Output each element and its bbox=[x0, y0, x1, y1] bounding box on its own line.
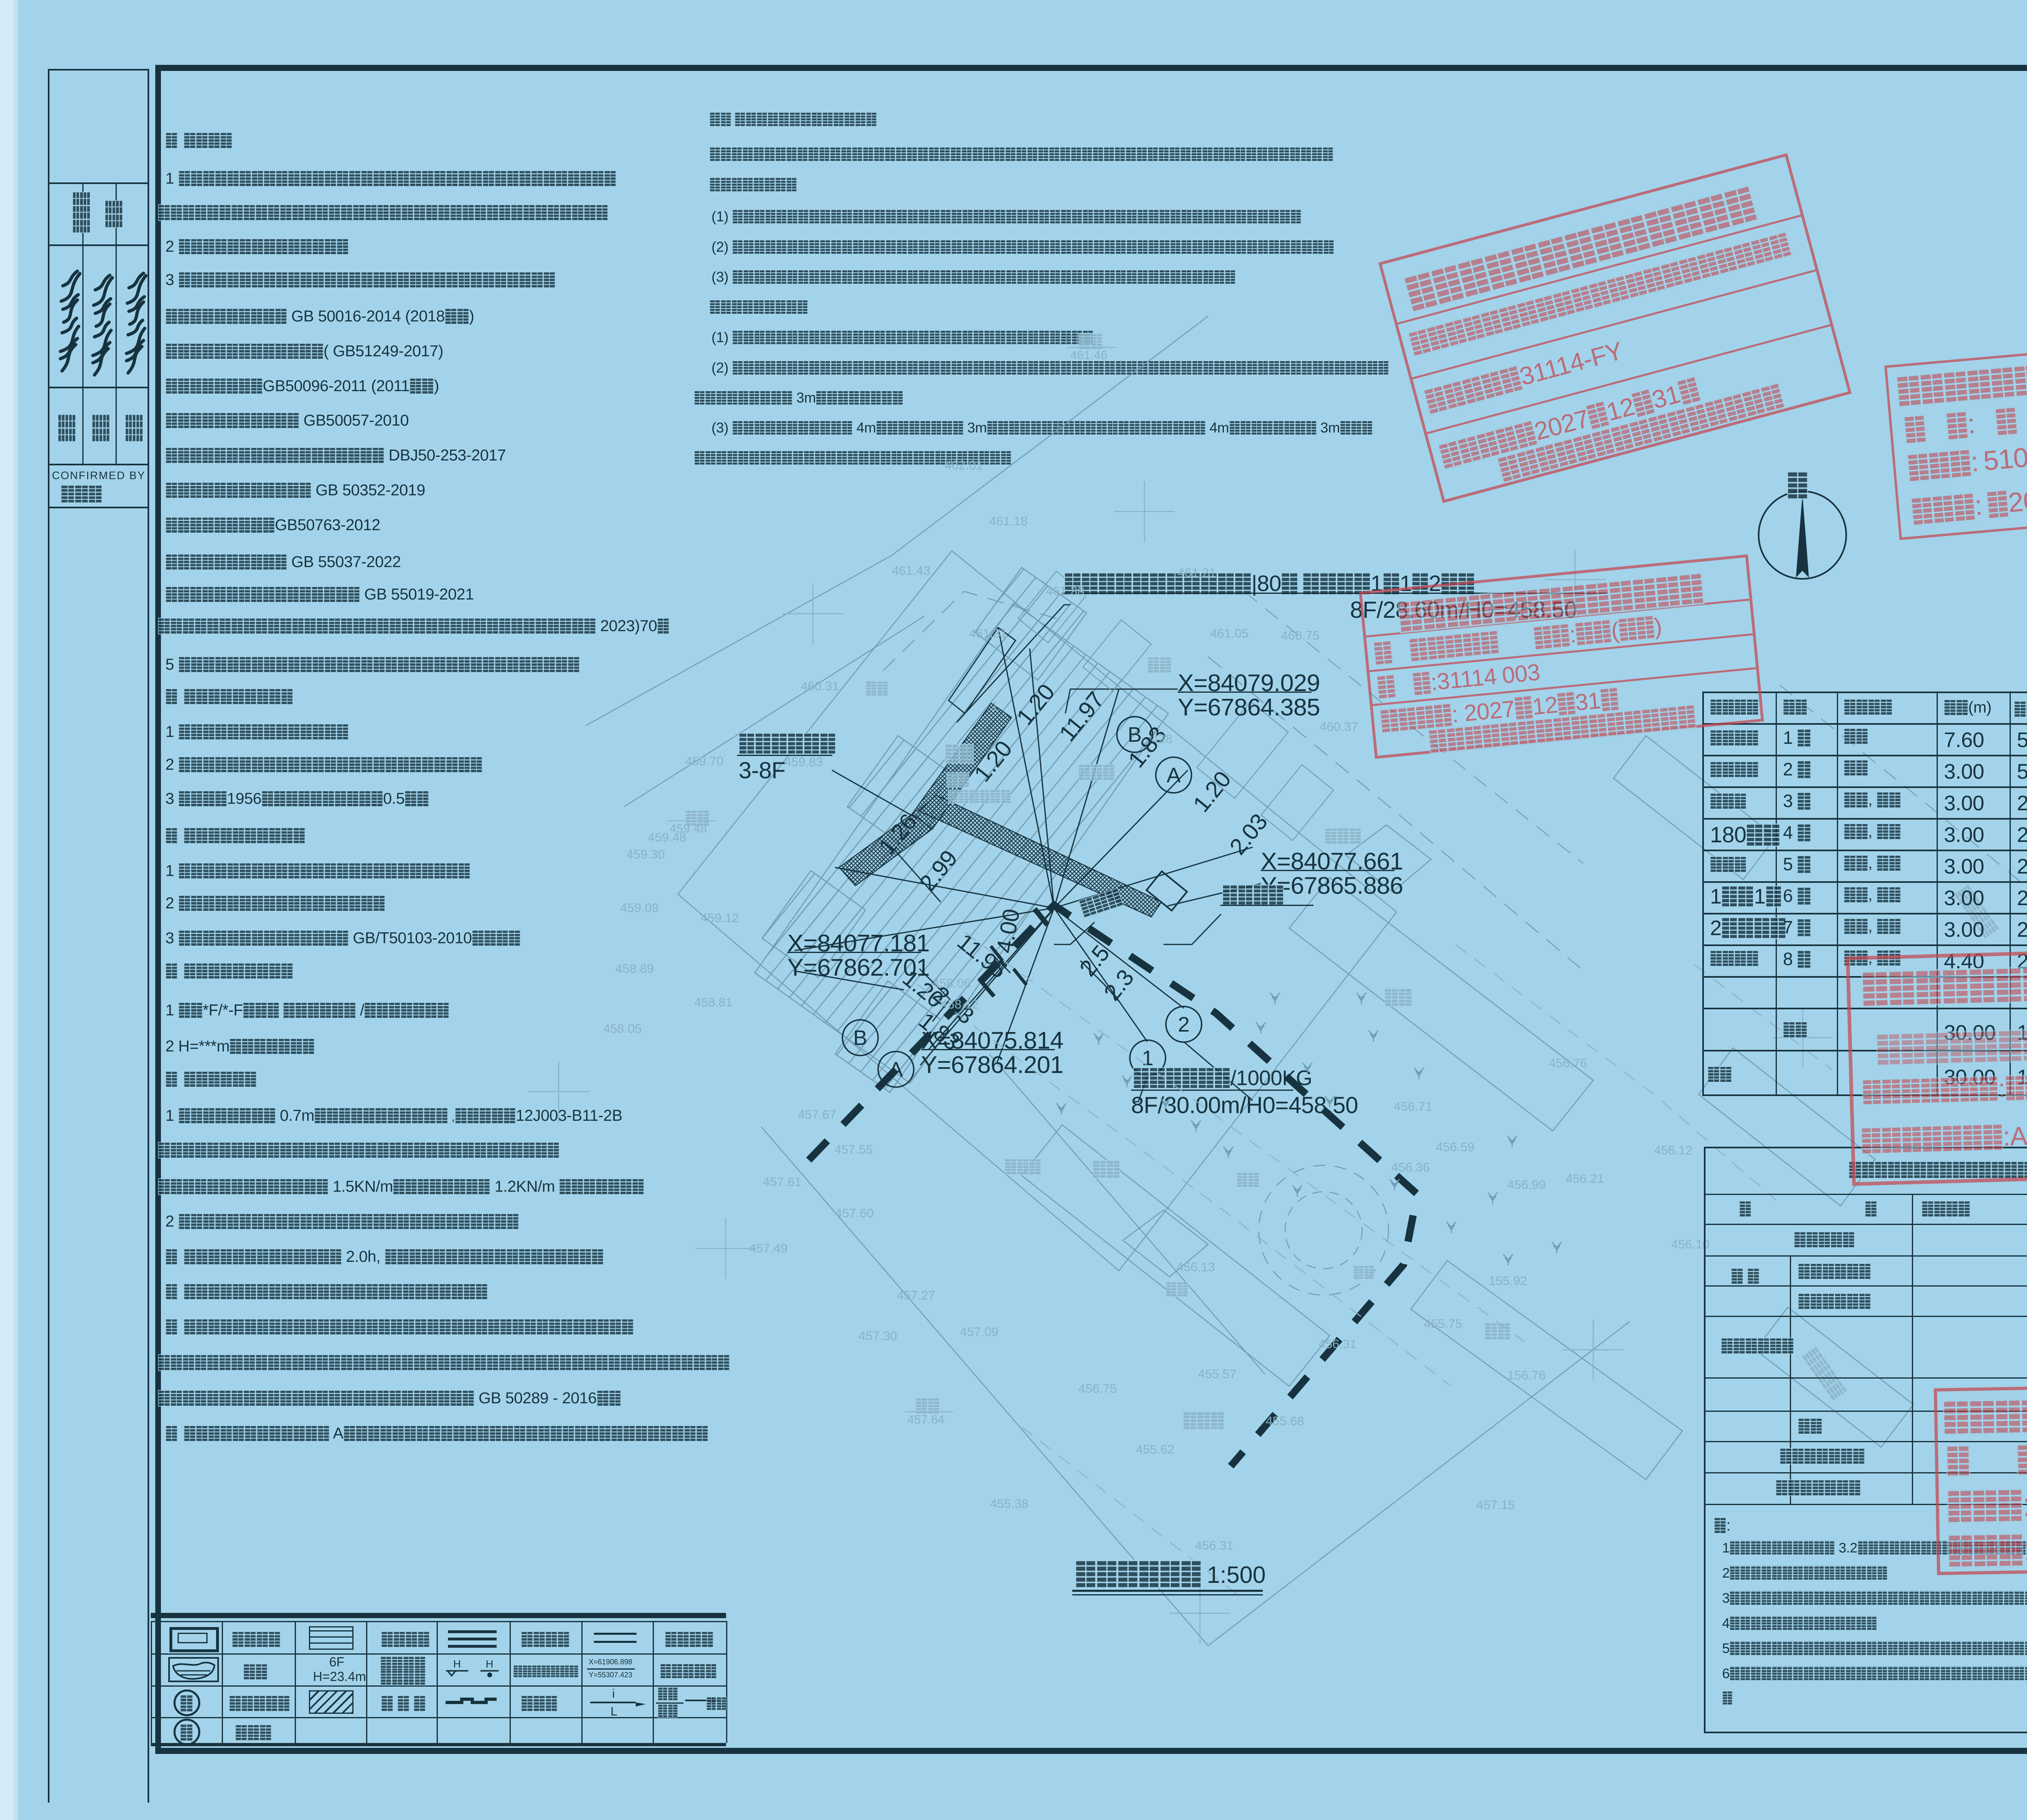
svg-text:L: L bbox=[611, 1705, 617, 1718]
svg-text:i: i bbox=[612, 1687, 615, 1700]
svg-text:H: H bbox=[486, 1659, 493, 1670]
svg-text:H: H bbox=[453, 1659, 461, 1670]
